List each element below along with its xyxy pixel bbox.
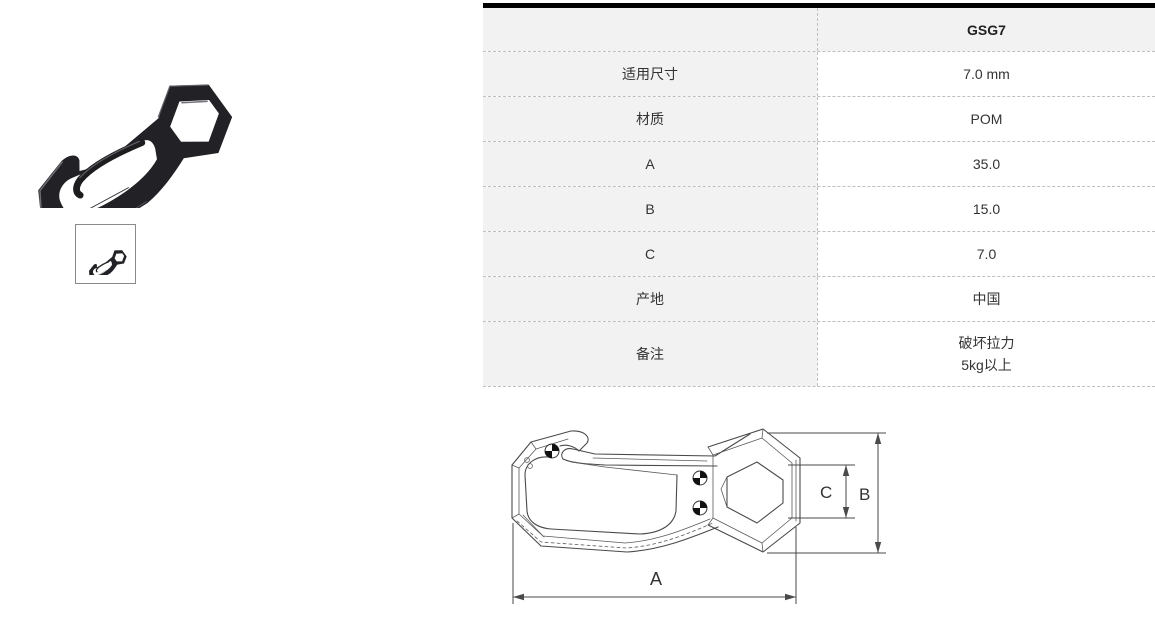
spec-row: 适用尺寸7.0 mm xyxy=(483,52,1155,97)
spec-value-line: 35.0 xyxy=(973,153,1000,175)
datum-target-icon xyxy=(693,501,707,515)
hook-inner-rim-top xyxy=(519,439,568,468)
spec-label: 适用尺寸 xyxy=(483,52,817,96)
spec-rows-container: 适用尺寸7.0 mm材质POMA35.0B15.0C7.0产地中国备注破坏拉力5… xyxy=(483,52,1155,387)
header-model-cell: GSG7 xyxy=(817,8,1155,51)
spec-value-line: 中国 xyxy=(973,288,1001,310)
spec-label: B xyxy=(483,187,817,231)
spec-value-line: POM xyxy=(971,108,1003,130)
dimension-a: A xyxy=(513,523,796,604)
gate-tongue-edge xyxy=(593,458,707,461)
spec-row: 产地中国 xyxy=(483,277,1155,322)
hook-opening xyxy=(525,457,677,534)
spec-row: 备注破坏拉力5kg以上 xyxy=(483,322,1155,387)
strap-hidden-edge xyxy=(517,521,713,548)
mould-mark-icon xyxy=(525,458,533,469)
hex-inner-rim xyxy=(713,438,792,543)
dimension-c: C xyxy=(788,465,855,518)
black-plastic-snap-hook-image xyxy=(8,0,244,208)
hook-outer-bottom xyxy=(512,465,718,552)
dim-label-b: B xyxy=(859,485,870,504)
header-empty-cell xyxy=(483,8,817,51)
hex-hole-left-facet xyxy=(721,477,727,507)
datum-target-icon xyxy=(545,444,559,458)
spec-label: 产地 xyxy=(483,277,817,321)
spec-row: A35.0 xyxy=(483,142,1155,187)
spec-row: 材质POM xyxy=(483,97,1155,142)
spec-value: 中国 xyxy=(817,277,1155,321)
spec-value-line: 7.0 xyxy=(977,243,996,265)
spec-value: 15.0 xyxy=(817,187,1155,231)
dim-label-c: C xyxy=(820,483,832,502)
spec-value: 7.0 mm xyxy=(817,52,1155,96)
spec-row: B15.0 xyxy=(483,187,1155,232)
tech-drawing: A B C xyxy=(455,415,925,614)
spec-value: 35.0 xyxy=(817,142,1155,186)
product-photo xyxy=(8,0,244,208)
spec-value: 破坏拉力5kg以上 xyxy=(817,322,1155,386)
product-detail-page: { "product": { "model": "GSG7", "photo_n… xyxy=(0,0,1155,614)
table-header-row: GSG7 xyxy=(483,8,1155,52)
gate-tongue-bottom xyxy=(563,459,717,466)
dimension-diagram: A B C xyxy=(455,415,925,614)
spec-value: POM xyxy=(817,97,1155,141)
datum-target-icon xyxy=(693,471,707,485)
spec-value-line: 7.0 mm xyxy=(963,63,1010,85)
hex-hole xyxy=(727,462,783,523)
spec-label: 材质 xyxy=(483,97,817,141)
spec-value-line: 15.0 xyxy=(973,198,1000,220)
product-thumbnail-image xyxy=(83,233,129,275)
spec-label: C xyxy=(483,232,817,276)
spec-value-line: 破坏拉力 xyxy=(959,332,1015,354)
hook-opening-top xyxy=(571,462,677,475)
dim-label-a: A xyxy=(650,569,662,589)
spec-label: 备注 xyxy=(483,322,817,386)
spec-table: GSG7 适用尺寸7.0 mm材质POMA35.0B15.0C7.0产地中国备注… xyxy=(483,3,1155,387)
hook-outer-top xyxy=(512,431,588,465)
gate-tongue-top xyxy=(562,434,750,459)
spec-value: 7.0 xyxy=(817,232,1155,276)
product-thumbnail[interactable] xyxy=(75,224,136,284)
spec-value-line: 5kg以上 xyxy=(961,354,1012,376)
spec-label: A xyxy=(483,142,817,186)
spec-row: C7.0 xyxy=(483,232,1155,277)
